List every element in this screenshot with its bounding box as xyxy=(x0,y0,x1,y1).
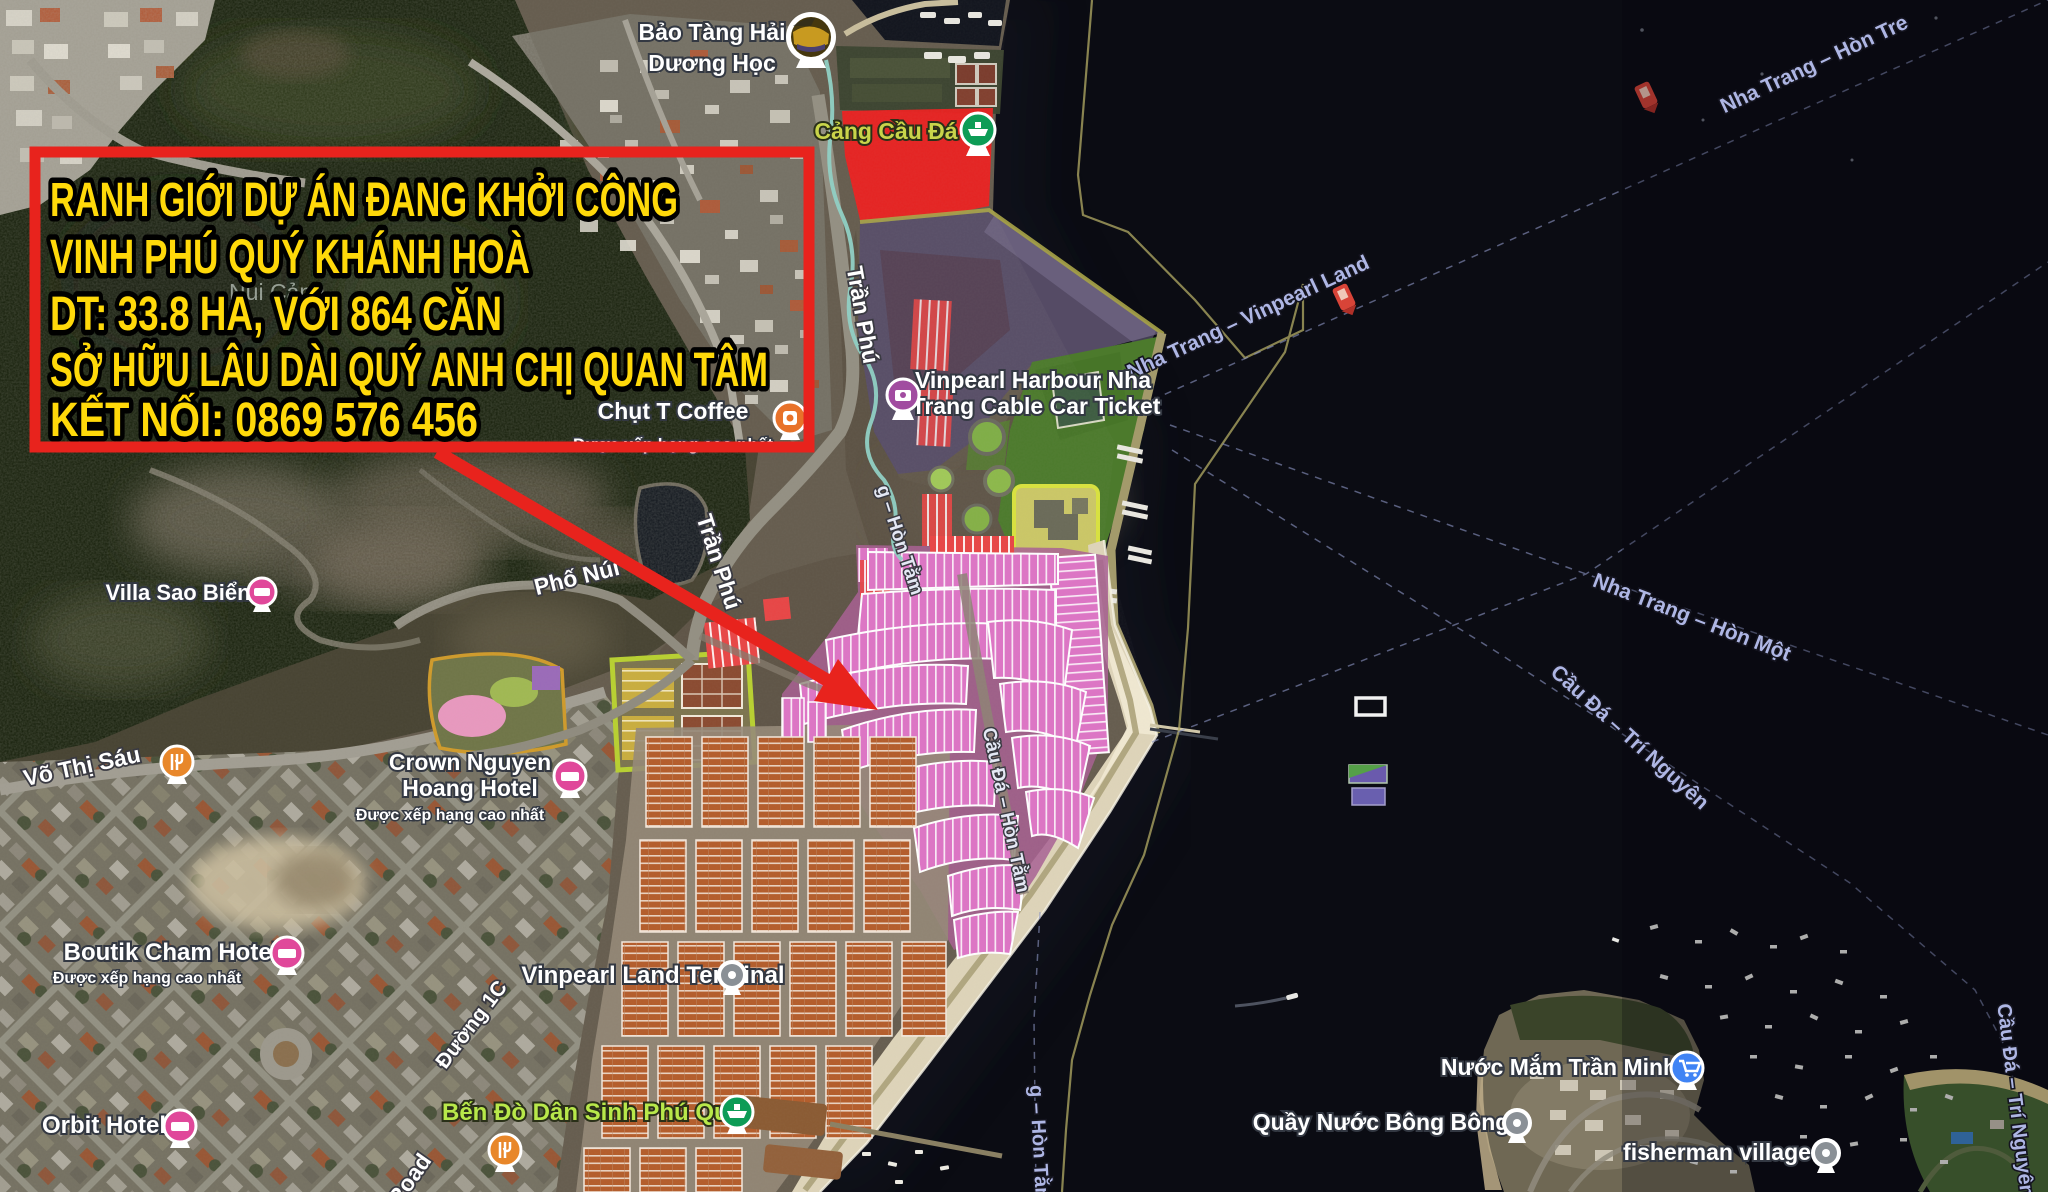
svg-text:Boutik Cham Hotel: Boutik Cham Hotel xyxy=(64,939,279,966)
svg-text:VINH PHÚ QUÝ KHÁNH HOÀ: VINH PHÚ QUÝ KHÁNH HOÀ xyxy=(50,229,530,284)
svg-text:fisherman village: fisherman village xyxy=(1623,1139,1811,1165)
svg-text:Chụt T Coffee: Chụt T Coffee xyxy=(598,398,749,424)
svg-text:Hoang Hotel: Hoang Hotel xyxy=(402,775,537,801)
svg-text:Dương Học: Dương Học xyxy=(648,50,776,76)
svg-text:RANH GIỚI DỰ ÁN ĐANG KHỞI CÔNG: RANH GIỚI DỰ ÁN ĐANG KHỞI CÔNG xyxy=(50,172,678,227)
svg-text:Được xếp hạng cao nhất: Được xếp hạng cao nhất xyxy=(53,970,242,987)
svg-text:Vinpearl Harbour Nha: Vinpearl Harbour Nha xyxy=(915,367,1151,393)
svg-text:Orbit Hotel: Orbit Hotel xyxy=(42,1112,166,1139)
svg-text:Bảo Tàng Hải: Bảo Tàng Hải xyxy=(639,19,786,45)
svg-text:Được xếp hạng cao nhất: Được xếp hạng cao nhất xyxy=(356,807,545,824)
svg-text:Crown Nguyen: Crown Nguyen xyxy=(389,749,551,775)
svg-text:Cảng Cầu Đá: Cảng Cầu Đá xyxy=(814,118,957,144)
svg-text:KẾT NỐI: 0869 576 456: KẾT NỐI: 0869 576 456 xyxy=(50,392,478,447)
svg-text:Nước Mắm Trần Minh: Nước Mắm Trần Minh xyxy=(1441,1053,1677,1080)
svg-text:Trang Cable Car Ticket: Trang Cable Car Ticket xyxy=(912,393,1161,419)
svg-text:Quầy Nước Bông Bông: Quầy Nước Bông Bông xyxy=(1253,1109,1510,1135)
svg-text:Villa Sao Biển: Villa Sao Biển xyxy=(105,580,250,605)
svg-text:DT: 33.8 HA, VỚI 864 CĂN: DT: 33.8 HA, VỚI 864 CĂN xyxy=(50,286,502,341)
svg-text:Bến Đò Dân Sinh Phú Quý: Bến Đò Dân Sinh Phú Quý xyxy=(442,1099,743,1126)
svg-text:SỞ HỮU LÂU DÀI QUÝ ANH CHỊ QUA: SỞ HỮU LÂU DÀI QUÝ ANH CHỊ QUAN TÂM xyxy=(50,342,768,397)
